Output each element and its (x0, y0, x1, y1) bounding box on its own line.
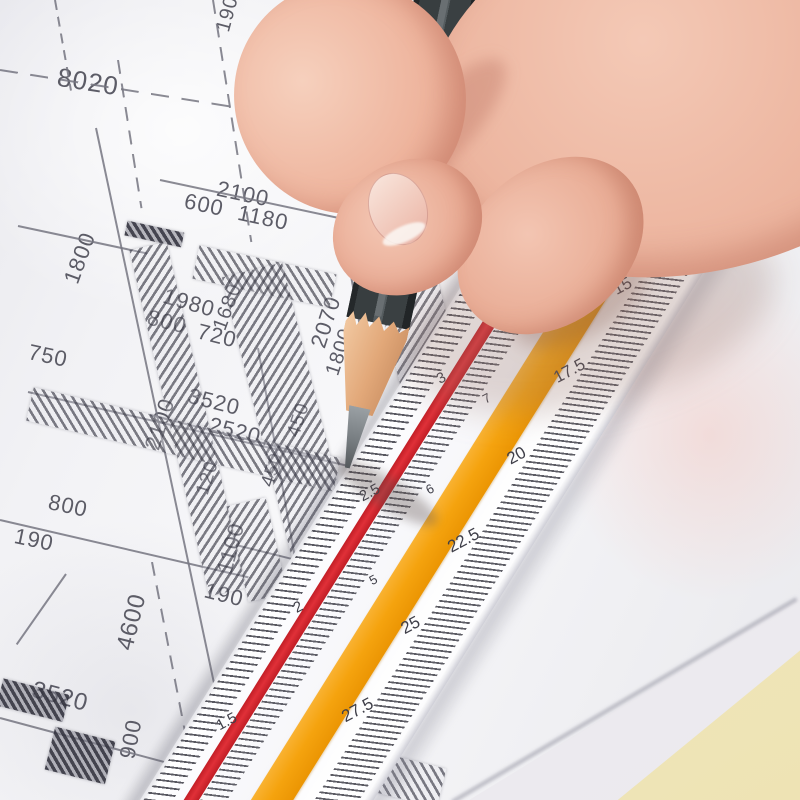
dimension-label-750: 750 (26, 339, 70, 373)
dimension-label-4600: 4600 (111, 591, 152, 653)
photo-architect-blueprint-scene: 8020190210060011801201800198016808007202… (0, 0, 800, 800)
blueprint-line (117, 60, 142, 208)
pencil-graphite-tip (334, 405, 372, 471)
blueprint-line (16, 573, 67, 645)
wall-column-poche (45, 727, 116, 785)
dimension-label-800: 800 (46, 489, 90, 523)
